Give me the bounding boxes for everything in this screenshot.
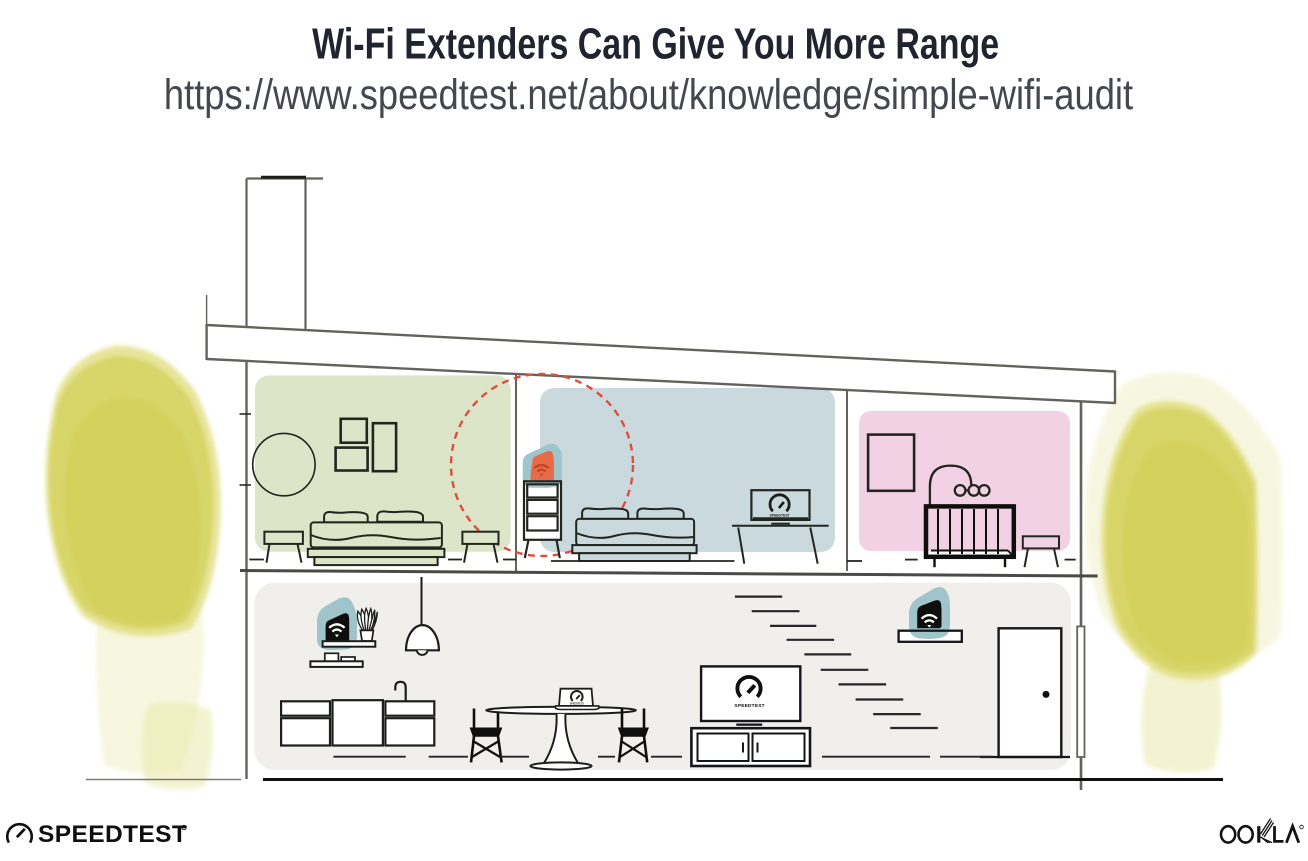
svg-text:SPEEDTEST: SPEEDTEST [570, 703, 585, 706]
svg-text:https://www.speedtest.net/abou: https://www.speedtest.net/about/knowledg… [164, 71, 1133, 118]
svg-text:Wi-Fi Extenders Can Give You M: Wi-Fi Extenders Can Give You More Range [312, 21, 999, 69]
svg-text:SPEEDTEST: SPEEDTEST [770, 513, 791, 517]
svg-text:SPEEDTEST: SPEEDTEST [38, 821, 187, 848]
svg-text:SPEEDTEST: SPEEDTEST [734, 703, 764, 709]
